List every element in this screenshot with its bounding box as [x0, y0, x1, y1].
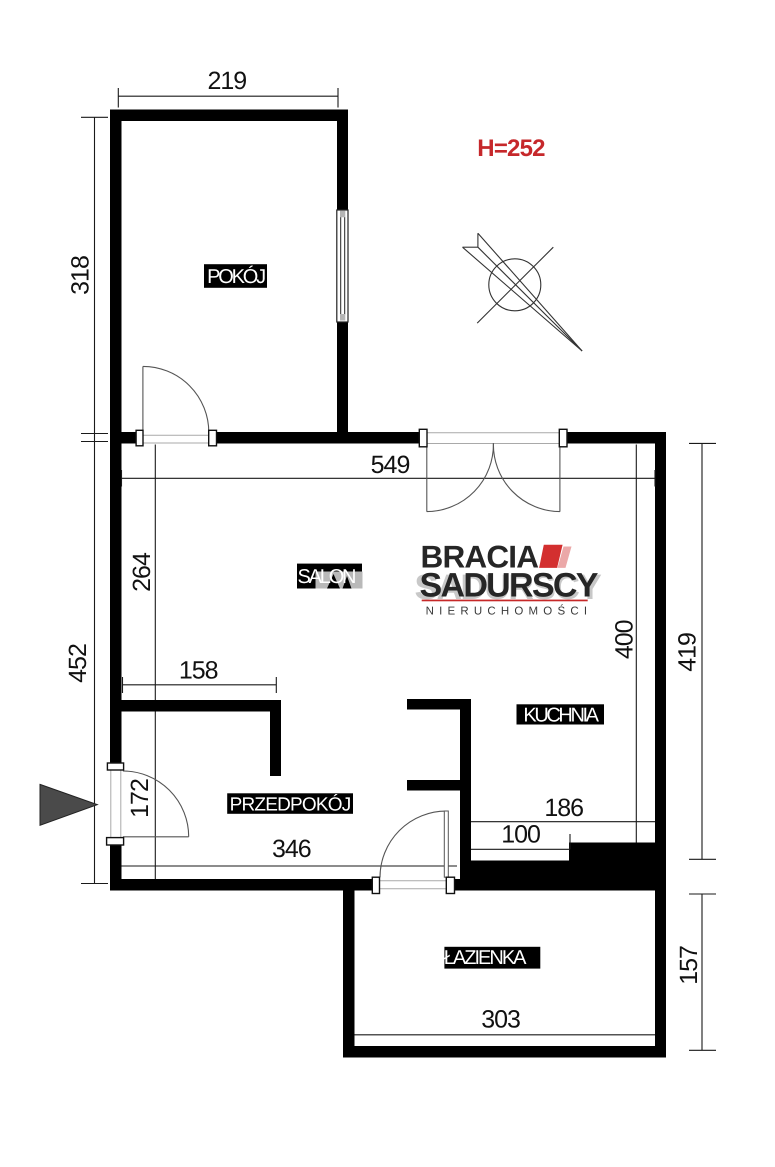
svg-text:KUCHNIA: KUCHNIA: [523, 705, 599, 727]
svg-text:158: 158: [179, 657, 218, 685]
svg-text:400: 400: [610, 620, 638, 659]
svg-text:219: 219: [207, 67, 246, 95]
svg-text:172: 172: [126, 779, 154, 818]
svg-text:157: 157: [675, 946, 703, 985]
svg-text:264: 264: [128, 552, 156, 592]
svg-text:100: 100: [501, 821, 540, 849]
svg-text:H=252: H=252: [477, 135, 545, 162]
svg-text:NIERUCHOMOŚCI: NIERUCHOMOŚCI: [426, 604, 593, 618]
svg-text:ŁAZIENKA: ŁAZIENKA: [444, 947, 527, 969]
svg-text:346: 346: [272, 835, 311, 863]
svg-text:318: 318: [66, 256, 94, 295]
svg-text:549: 549: [371, 451, 410, 479]
svg-text:303: 303: [481, 1006, 520, 1034]
svg-text:SALON: SALON: [298, 566, 356, 588]
svg-text:186: 186: [544, 794, 583, 822]
svg-text:452: 452: [64, 644, 92, 683]
svg-text:POKÓJ: POKÓJ: [207, 265, 265, 288]
svg-text:419: 419: [674, 633, 702, 672]
svg-text:PRZEDPOKÓJ: PRZEDPOKÓJ: [230, 794, 351, 816]
svg-text:SADURSCY: SADURSCY: [420, 567, 599, 605]
